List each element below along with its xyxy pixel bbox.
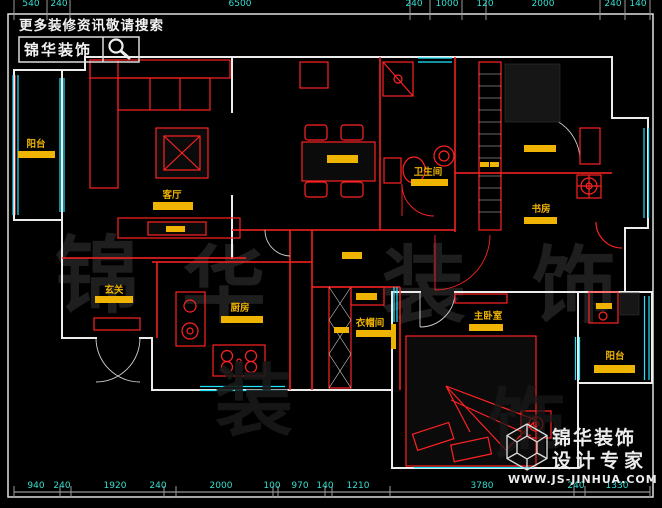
label-bar: [490, 162, 499, 167]
dimension-value: 940: [27, 481, 44, 491]
label-bar: [221, 316, 263, 323]
appliance: [620, 293, 639, 315]
label-bar: [596, 303, 612, 309]
label-bar: [524, 217, 557, 224]
dimension-value: 240: [604, 0, 621, 9]
label-bar: [327, 155, 358, 163]
dimension-value: 140: [629, 0, 646, 9]
label-bar: [480, 162, 489, 167]
coffee-table: [156, 128, 208, 178]
label-bar: [166, 226, 185, 232]
room-name: 衣帽间: [356, 317, 385, 329]
room-name: 客厅: [161, 189, 182, 201]
room-label-master: 主卧室: [469, 310, 503, 331]
label-bar: [391, 324, 396, 349]
room-name: 卫生间: [414, 166, 443, 178]
dimension-value: 140: [316, 481, 333, 491]
branding-tagline: 更多装修资讯敬请搜索: [19, 17, 164, 34]
branding-company: 锦华装饰: [552, 426, 636, 449]
dimension-value: 240: [53, 481, 70, 491]
bed-silhouette: [505, 64, 560, 122]
label-bar: [342, 252, 362, 259]
branding-website: WWW.JS-JINHUA.COM: [508, 473, 658, 486]
dimension-value: 1000: [436, 0, 459, 9]
label-bar: [356, 293, 377, 300]
watermark-char: 装: [382, 237, 466, 335]
label-bar: [334, 327, 349, 333]
room-name: 阳台: [605, 350, 625, 362]
cad-floorplan-screenshot: 锦 华 装 饰 540 240 6500 240 1000 120 2000 2…: [0, 0, 662, 508]
room-name: 主卧室: [474, 310, 503, 322]
label-bar: [594, 365, 635, 373]
label-bar: [95, 296, 133, 303]
dimension-value: 120: [476, 0, 493, 9]
dimension-value: 240: [50, 0, 67, 9]
room-name: 厨房: [230, 302, 249, 314]
dimension-value: 1920: [104, 481, 127, 491]
dimension-value: 1210: [347, 481, 370, 491]
label-bar: [153, 202, 193, 210]
floorplan-canvas: 锦 华 装 饰 540 240 6500 240 1000 120 2000 2…: [0, 0, 662, 508]
label-bar: [356, 330, 393, 337]
branding-slogan: 设计专家: [552, 449, 648, 472]
room-name: 书房: [531, 203, 550, 215]
label-bar: [469, 324, 503, 331]
dimension-value: 3780: [471, 481, 494, 491]
dimension-value: 100: [263, 481, 280, 491]
dimension-value: 2000: [210, 481, 233, 491]
dimension-value: 240: [149, 481, 166, 491]
dimension-value: 2000: [532, 0, 555, 9]
room-name: 阳台: [26, 138, 46, 150]
dimension-value: 970: [291, 481, 308, 491]
label-bar: [411, 179, 448, 186]
dimension-value: 240: [405, 0, 422, 9]
watermark-char: 装: [215, 357, 293, 447]
watermark-char: 锦: [55, 227, 139, 325]
label-bar: [18, 151, 55, 158]
label-bar: [524, 145, 556, 152]
dimension-value: 6500: [229, 0, 252, 9]
room-name: 玄关: [104, 284, 124, 296]
dimension-value: 540: [22, 0, 39, 9]
branding-logo-text: 锦华装饰: [24, 41, 92, 59]
